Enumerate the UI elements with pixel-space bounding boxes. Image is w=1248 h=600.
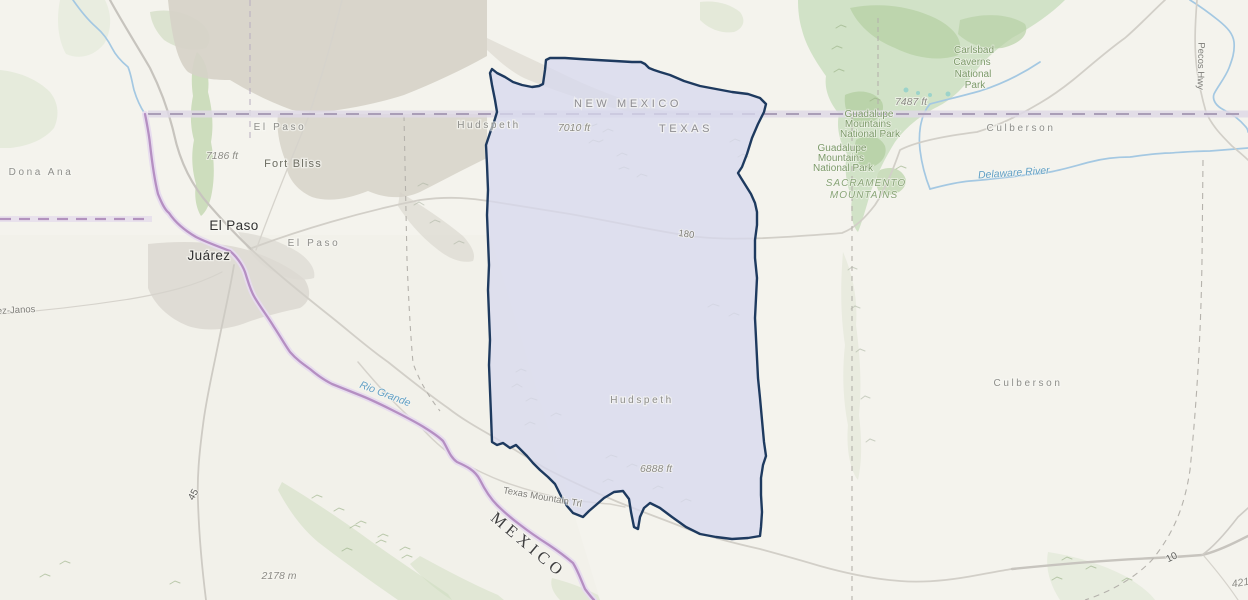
road-label-180: 180 — [678, 228, 695, 241]
city-label-juarez: Juárez — [188, 248, 231, 263]
county-label-hudspeth-inner: Hudspeth — [610, 395, 674, 406]
county-label-culberson-north: Culberson — [987, 123, 1056, 134]
park-label-sacramento-line1: SACRAMENTO — [826, 178, 906, 189]
map-canvas[interactable]: NEW MEXICO TEXAS Hudspeth Hudspeth El Pa… — [0, 0, 1248, 600]
state-label-new-mexico: NEW MEXICO — [574, 98, 682, 110]
park-label-sacramento-line2: MOUNTAINS — [830, 190, 898, 201]
park-label-guadalupe-b-line3: National Park — [813, 163, 874, 174]
county-label-hudspeth-west: Hudspeth — [457, 120, 521, 131]
city-label-el-paso: El Paso — [209, 218, 258, 233]
place-label-fort-bliss: Fort Bliss — [264, 158, 322, 170]
park-label-carlsbad-line4: Park — [965, 80, 987, 91]
county-label-el-paso-south: El Paso — [288, 238, 341, 249]
road-label-janos: ez-Janos — [0, 304, 36, 317]
park-label-guadalupe-a-line3: National Park — [840, 129, 901, 140]
county-label-dona-ana: Dona Ana — [9, 167, 74, 178]
county-label-culberson-south: Culberson — [994, 378, 1063, 389]
county-label-el-paso-north: El Paso — [254, 122, 307, 133]
elevation-label-6888: 6888 ft — [640, 463, 673, 475]
road-label-pecos-hwy: Pecos Hwy — [1195, 42, 1207, 90]
elevation-label-2178: 2178 m — [260, 570, 296, 582]
park-label-carlsbad-line2: Caverns — [953, 57, 990, 68]
park-label-carlsbad-line3: National — [955, 69, 992, 80]
state-label-texas: TEXAS — [659, 123, 713, 135]
elevation-label-7010: 7010 ft — [558, 122, 591, 134]
park-label-carlsbad-line1: Carlsbad — [954, 45, 994, 56]
elevation-label-421: 421 — [1231, 576, 1248, 591]
elevation-label-7487: 7487 ft — [895, 96, 928, 108]
elevation-label-7186: 7186 ft — [206, 150, 239, 162]
